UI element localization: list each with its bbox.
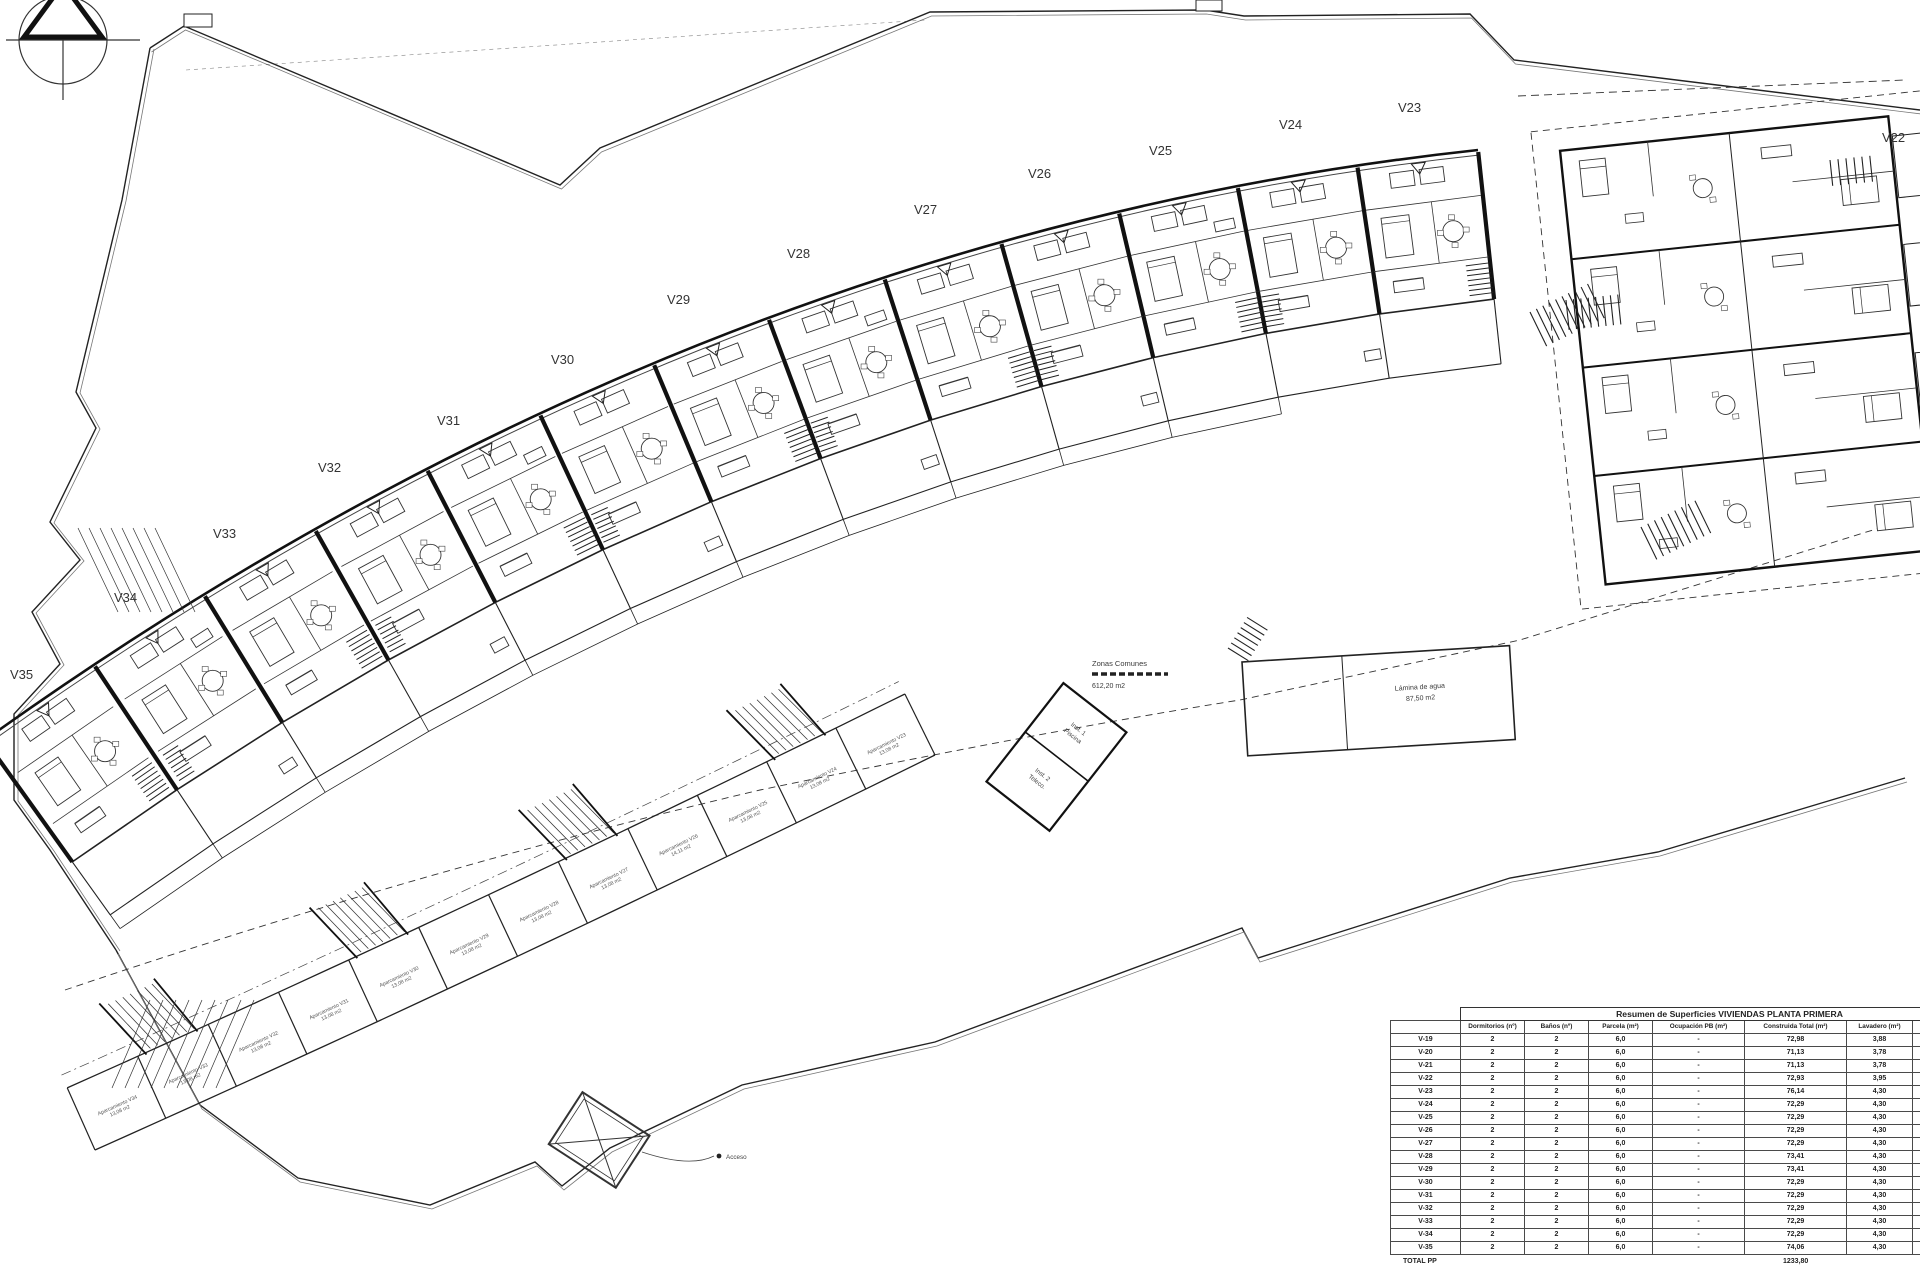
- parking-divider: [697, 795, 727, 856]
- unit-label-v24: V24: [1279, 117, 1302, 132]
- parking-divider: [628, 829, 657, 890]
- unit-label-v27: V27: [914, 202, 937, 217]
- unit-label-v30: V30: [551, 352, 574, 367]
- utility-building: Inst. 1 Piscina Inst. 2 Teleco.: [986, 683, 1126, 831]
- table-row: V-22226,0-72,933,9510,4: [1391, 1073, 1920, 1086]
- table-col-header: [1391, 1021, 1461, 1034]
- unit-label-v33: V33: [213, 526, 236, 541]
- unit-label-v23: V23: [1398, 100, 1421, 115]
- parking-divider: [349, 960, 378, 1022]
- table-row: V-24226,0-72,294,305,1: [1391, 1099, 1920, 1112]
- table-row: V-27226,0-72,294,305,1: [1391, 1138, 1920, 1151]
- table-row: V-32226,0-72,294,305,1: [1391, 1203, 1920, 1216]
- unit-label-v31: V31: [437, 413, 460, 428]
- parking-label: Aparcamiento V3113,08 m2: [308, 998, 352, 1027]
- party-wall: [1119, 214, 1153, 358]
- parking-label: Aparcamiento V2513,08 m2: [728, 800, 772, 829]
- table-col-header: Lavadero (m²): [1847, 1021, 1913, 1034]
- table-row: V-19226,0-72,983,8810,4: [1391, 1034, 1920, 1047]
- parking-divider: [558, 862, 587, 923]
- table-row: V-33226,0-72,294,305,1: [1391, 1216, 1920, 1229]
- unit-label-v32: V32: [318, 460, 341, 475]
- unit-label-v26: V26: [1028, 166, 1051, 181]
- total-value: 1233,80: [1783, 1258, 1808, 1265]
- stairs-hatch: [1228, 617, 1267, 660]
- pool-label: Lámina de agua: [1395, 683, 1446, 693]
- zonas-comunes-label: Zonas Comunes: [1092, 659, 1147, 668]
- parking-divider: [419, 927, 448, 989]
- parking-divider: [489, 895, 518, 957]
- apartment-block: [1228, 90, 1920, 661]
- table-row: V-34226,0-72,294,305,1: [1391, 1229, 1920, 1242]
- table-row: V-35226,0-74,064,305,1: [1391, 1242, 1920, 1255]
- table-row: V-30226,0-72,294,305,1: [1391, 1177, 1920, 1190]
- slope-hatches: [78, 528, 254, 1088]
- parking-divider: [836, 728, 866, 789]
- parking-label: Aparcamiento V3013,08 m2: [379, 966, 423, 995]
- north-arrow-icon: [6, 0, 140, 100]
- party-wall: [1478, 152, 1494, 299]
- parking-divider: [67, 1088, 95, 1150]
- table-col-header: Ocupación PB (m²): [1653, 1021, 1745, 1034]
- parking-label: Aparcamiento V2713,08 m2: [588, 867, 632, 896]
- pool: Lámina de agua 87,50 m2: [1242, 646, 1515, 756]
- unit-label-v28: V28: [787, 246, 810, 261]
- unit-label-v25: V25: [1149, 143, 1172, 158]
- parking-label: Aparcamiento V2913,08 m2: [449, 933, 493, 962]
- unit-label-v29: V29: [667, 292, 690, 307]
- unit-label-v34: V34: [114, 590, 137, 605]
- total-label: TOTAL PP: [1403, 1258, 1437, 1265]
- parking-label: Aparcamiento V2813,08 m2: [519, 900, 563, 929]
- parking-divider: [905, 694, 935, 755]
- table-col-header: Construida Total (m²): [1745, 1021, 1847, 1034]
- table-row: V-31226,0-72,294,305,1: [1391, 1190, 1920, 1203]
- parking-divider: [279, 992, 307, 1054]
- table-col-header: Dormitorios (nº): [1461, 1021, 1525, 1034]
- parking-divider: [208, 1024, 236, 1086]
- zonas-comunes-annotation: Zonas Comunes 612,20 m2: [1092, 659, 1168, 690]
- table-title: Resumen de Superficies VIVIENDAS PLANTA …: [1461, 1008, 1920, 1021]
- zonas-comunes-area: 612,20 m2: [1092, 683, 1125, 690]
- table-row: V-29226,0-73,414,305,1: [1391, 1164, 1920, 1177]
- table-row: V-21226,0-71,133,785,1: [1391, 1060, 1920, 1073]
- parking-label: Aparcamiento V2313,08 m2: [866, 732, 910, 762]
- table-col-header: Parcela (m²): [1589, 1021, 1653, 1034]
- parking-label: Aparcamiento V2413,08 m2: [797, 766, 841, 796]
- unit-label-v22: V22: [1882, 130, 1905, 145]
- parking-label: Aparcamiento V2614,11 m2: [658, 833, 702, 862]
- floor-plan-page: { "plan": { "unit_labels": [ {"label":"V…: [0, 0, 1920, 1280]
- table-row: V-25226,0-72,294,305,1: [1391, 1112, 1920, 1125]
- parking-label: Aparcamiento V3413,08 m2: [97, 1094, 141, 1122]
- areas-summary-table: Resumen de Superficies VIVIENDAS PLANTA …: [1390, 1007, 1920, 1255]
- pool-area-label: 87,50 m2: [1406, 694, 1436, 703]
- parking-divider: [138, 1056, 166, 1118]
- stairs-hatch: [1641, 501, 1711, 560]
- table-row: V-28226,0-73,414,305,1: [1391, 1151, 1920, 1164]
- table-col-header: Terrazas (m²): [1913, 1021, 1920, 1034]
- party-wall: [1358, 168, 1380, 314]
- parking-divider: [767, 762, 797, 823]
- acceso-label: Acceso: [726, 1154, 747, 1161]
- parking-label: Aparcamiento V3213,08 m2: [238, 1030, 282, 1059]
- table-row: V-26226,0-72,294,305,1: [1391, 1125, 1920, 1138]
- table-row: V-23226,0-76,144,3010,4: [1391, 1086, 1920, 1099]
- unit-label-v35: V35: [10, 667, 33, 682]
- table-col-header: Baños (nº): [1525, 1021, 1589, 1034]
- table-row: V-20226,0-71,133,785,1: [1391, 1047, 1920, 1060]
